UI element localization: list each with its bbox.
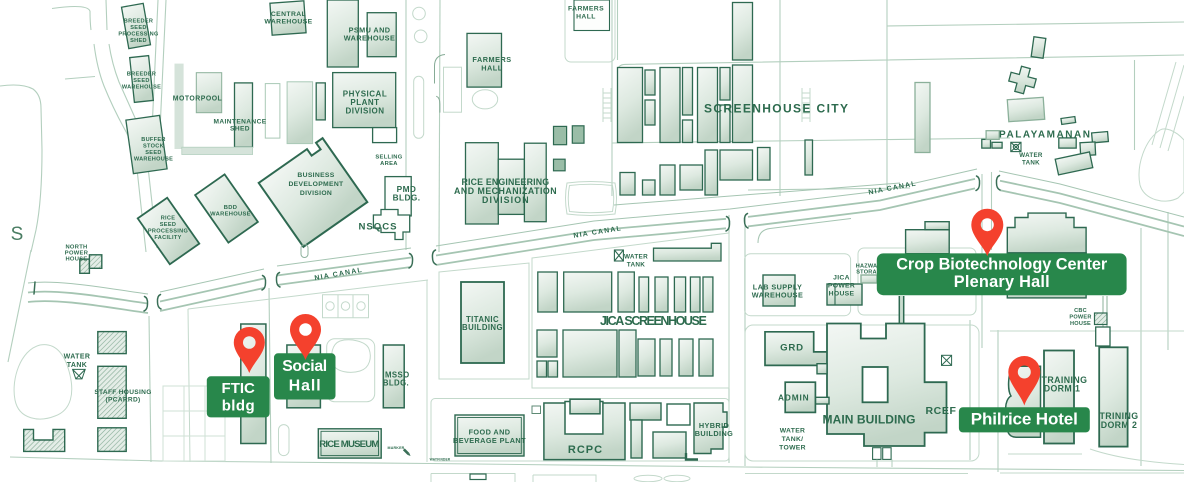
svg-text:GRD: GRD: [780, 343, 804, 354]
svg-text:LAB SUPPLYWAREHOUSE: LAB SUPPLYWAREHOUSE: [752, 283, 803, 300]
svg-text:JICA SCREENHOUSE: JICA SCREENHOUSE: [600, 314, 708, 328]
svg-text:PALAYAMANAN: PALAYAMANAN: [999, 130, 1091, 141]
svg-text:ADMIN: ADMIN: [778, 393, 809, 403]
svg-text:TITANICBUILDING: TITANICBUILDING: [462, 315, 503, 332]
svg-text:FTIC: FTIC: [222, 380, 255, 397]
svg-text:WATERTANK: WATERTANK: [64, 354, 91, 370]
svg-text:PMDBLDG.: PMDBLDG.: [393, 184, 421, 203]
svg-text:MARKER: MARKER: [388, 446, 405, 450]
svg-text:RCEF: RCEF: [926, 405, 957, 417]
svg-text:MAIN BUILDING: MAIN BUILDING: [823, 413, 917, 427]
svg-text:SCREENHOUSE CITY: SCREENHOUSE CITY: [704, 102, 851, 116]
svg-text:bldg: bldg: [222, 398, 255, 415]
svg-text:TRININGDORM 2: TRININGDORM 2: [1100, 411, 1139, 430]
svg-text:NSQCS: NSQCS: [358, 222, 397, 233]
svg-text:Philrice Hotel: Philrice Hotel: [971, 410, 1078, 429]
svg-text:HYBRIDBUILDING: HYBRIDBUILDING: [695, 421, 733, 438]
svg-text:IMSSOBLDG.: IMSSOBLDG.: [382, 371, 409, 388]
svg-text:Plenary Hall: Plenary Hall: [954, 273, 1050, 291]
svg-text:CENTRALWAREHOUSE: CENTRALWAREHOUSE: [264, 11, 312, 26]
svg-text:WATERTANK: WATERTANK: [1019, 152, 1043, 167]
svg-text:WATERTANK: WATERTANK: [624, 254, 648, 269]
svg-text:Hall: Hall: [289, 378, 321, 395]
svg-text:S: S: [11, 224, 24, 245]
svg-text:Social: Social: [282, 358, 327, 375]
svg-text:RCPC: RCPC: [568, 444, 603, 456]
svg-text:PSMU ANDWAREHOUSE: PSMU ANDWAREHOUSE: [344, 26, 395, 43]
svg-text:HAZWASTORA: HAZWASTORA: [856, 264, 878, 276]
svg-text:RICE MUSEUM: RICE MUSEUM: [319, 439, 380, 450]
svg-text:WATERTANK/TOWER: WATERTANK/TOWER: [779, 428, 806, 452]
svg-text:NORTHPOWERHOUSE: NORTHPOWERHOUSE: [65, 245, 89, 263]
svg-text:WAYFINDER: WAYFINDER: [430, 458, 451, 462]
svg-text:MOTORPOOL: MOTORPOOL: [173, 96, 223, 103]
svg-text:Crop Biotechnology Center: Crop Biotechnology Center: [896, 256, 1108, 274]
